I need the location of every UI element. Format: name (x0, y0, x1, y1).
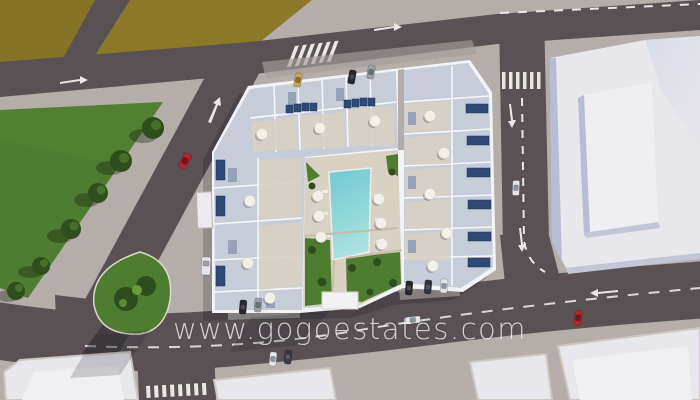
car-dark-parked (424, 280, 432, 295)
car-red-bottom-right (574, 310, 583, 326)
pool (329, 168, 371, 260)
van-white (201, 257, 211, 275)
car-dark-parked (405, 281, 413, 296)
car-white-parked (440, 279, 448, 294)
palm-crown (132, 285, 142, 295)
car-white-parked (269, 352, 277, 367)
palm-crown (119, 299, 127, 307)
car-white-right-road (512, 180, 520, 195)
car-dark-parked (239, 300, 247, 315)
car-gray-parked (254, 298, 262, 313)
apartment-complex (212, 60, 496, 313)
scene (0, 0, 700, 400)
car-white-bottom-road (405, 316, 421, 325)
render-image: www.gogoestates.com (0, 0, 700, 400)
roof-slab (584, 82, 658, 232)
large-white-building-top-right (550, 36, 700, 274)
alley (398, 69, 404, 150)
kiosk-structure (196, 192, 212, 229)
car-dark-parked (284, 350, 292, 365)
entrance-canopy (322, 292, 358, 309)
